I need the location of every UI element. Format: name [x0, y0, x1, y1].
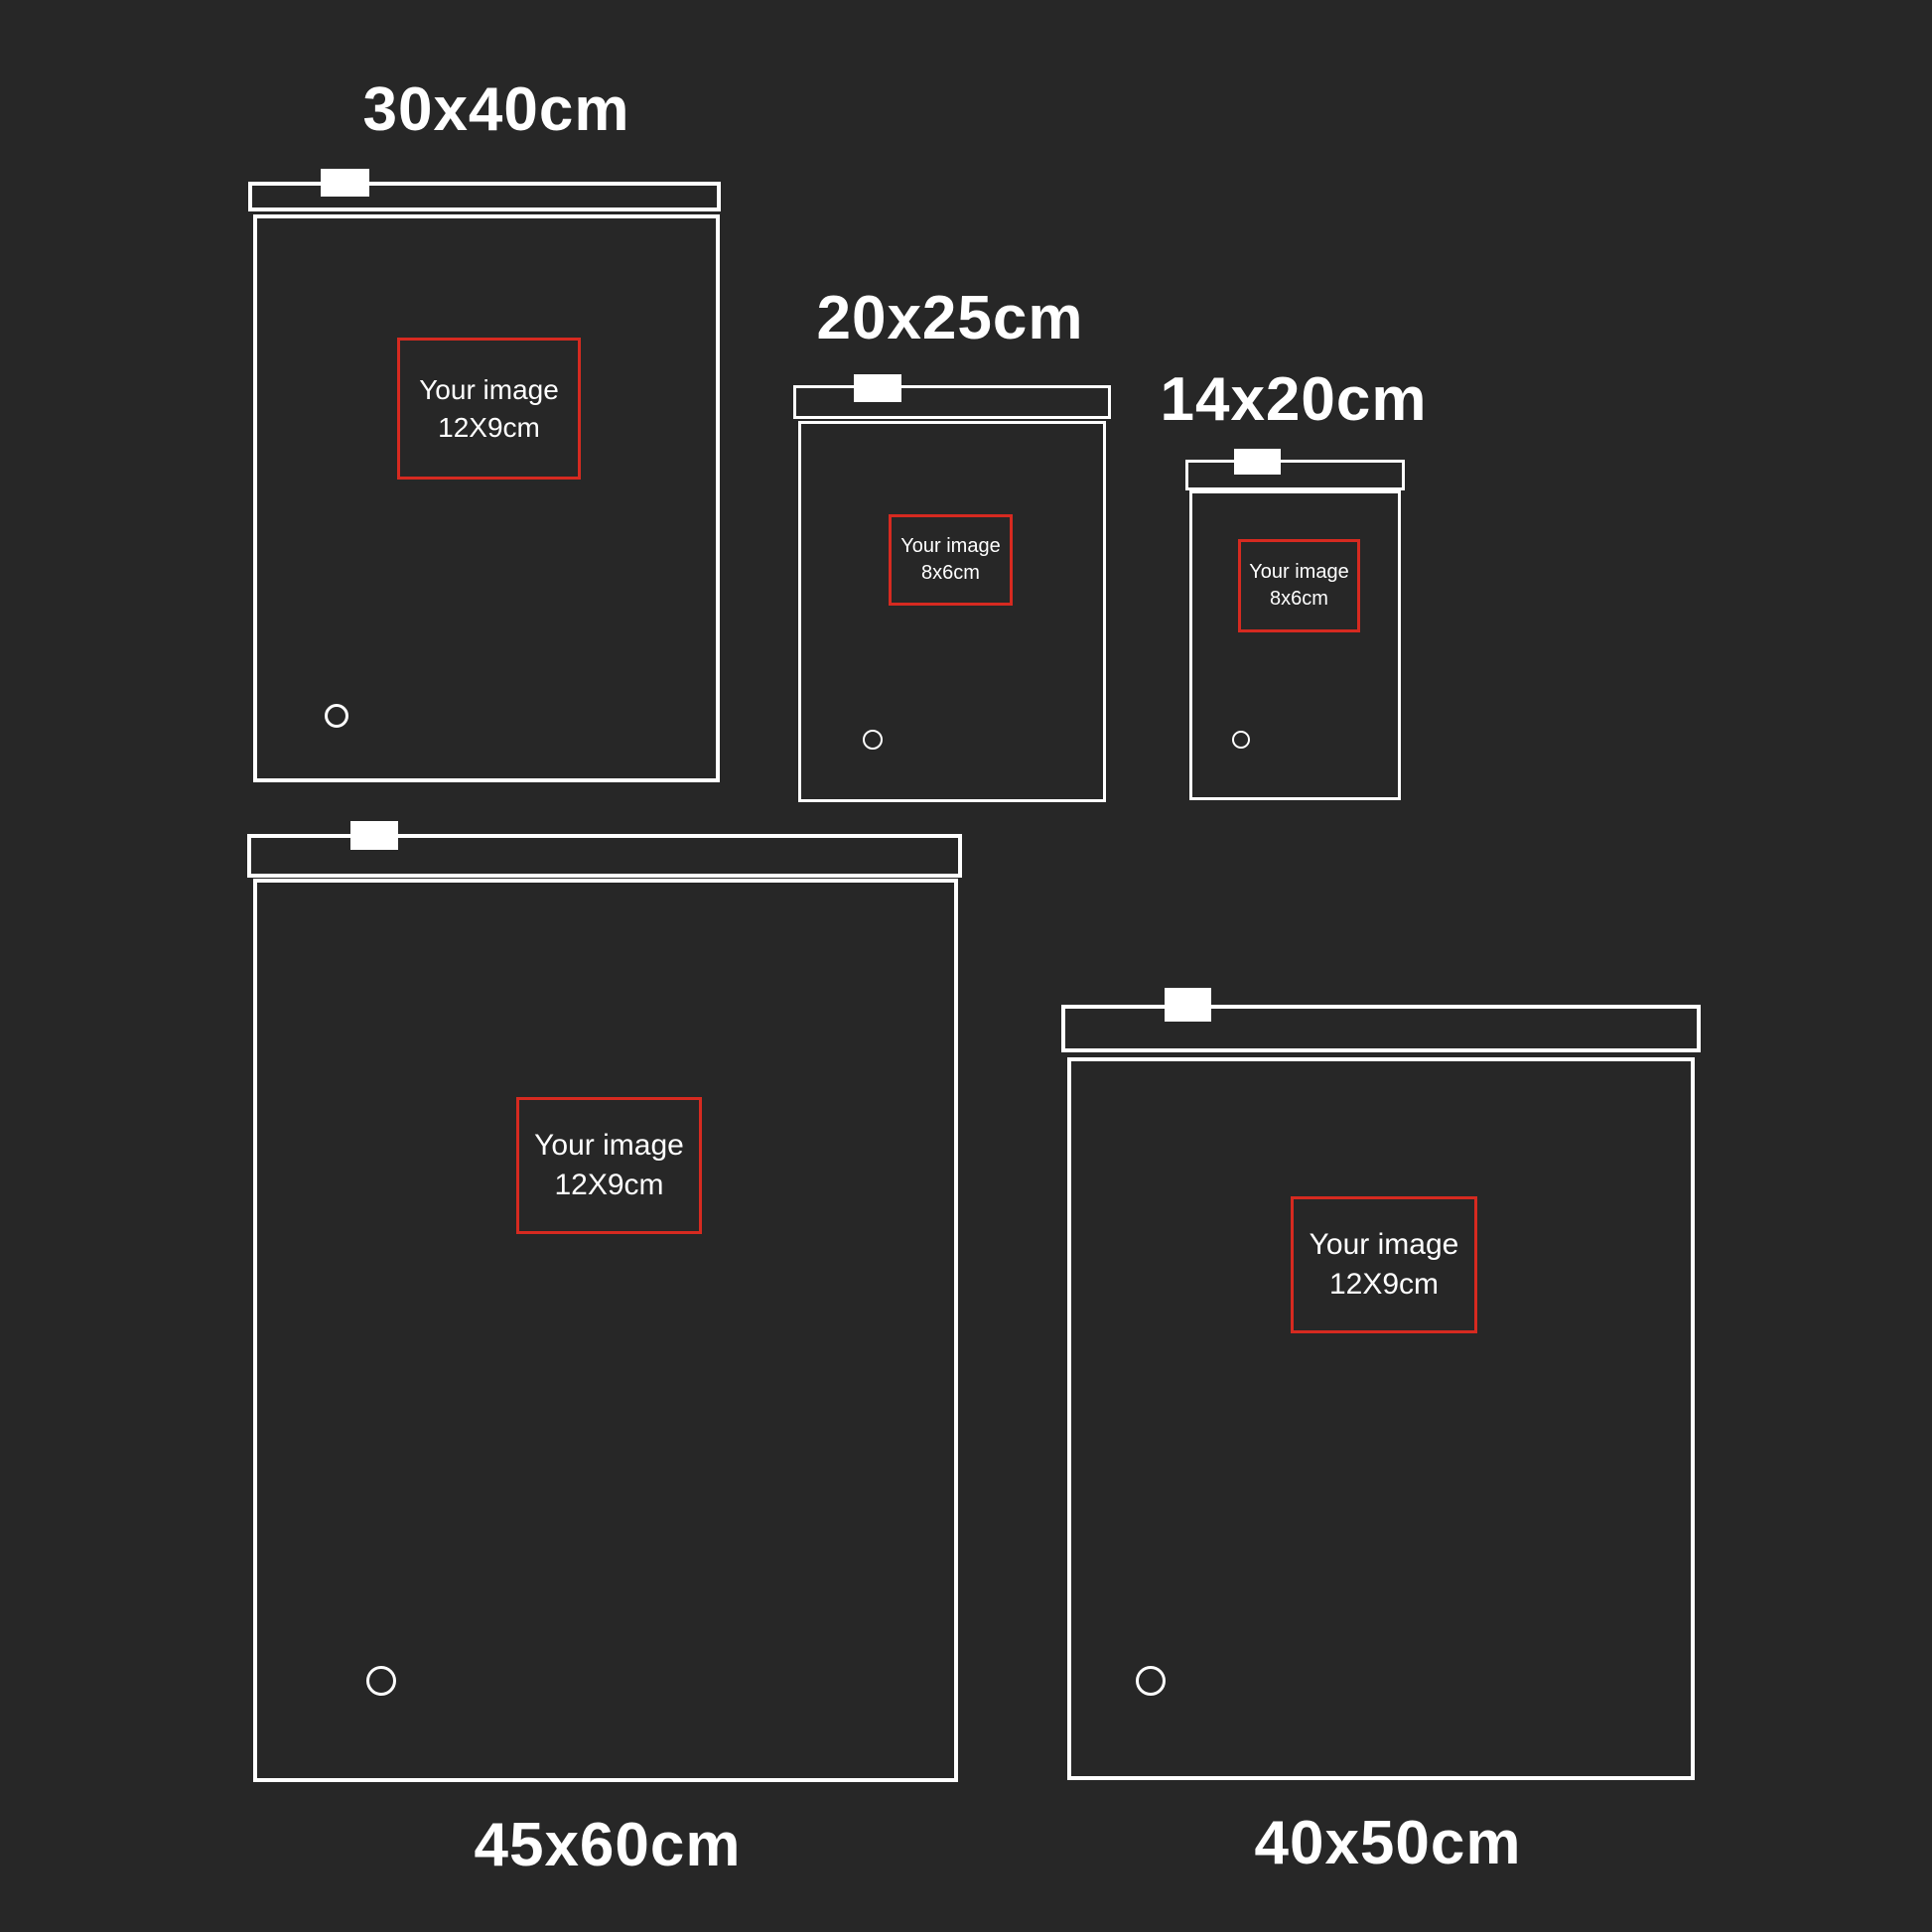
image-placeholder-text: Your image	[419, 371, 559, 409]
bag-20x25cm: Your image 8x6cm	[793, 374, 1113, 806]
image-placeholder-box: Your image 8x6cm	[1238, 539, 1360, 632]
image-placeholder-size: 12X9cm	[438, 409, 540, 447]
hang-hole	[1136, 1666, 1166, 1696]
hang-hole	[863, 730, 883, 750]
image-placeholder-box: Your image 12X9cm	[516, 1097, 702, 1234]
zipper-band	[248, 182, 721, 211]
image-placeholder-text: Your image	[1310, 1225, 1459, 1266]
zipper-band	[793, 385, 1111, 419]
image-placeholder-box: Your image 8x6cm	[889, 514, 1013, 606]
image-placeholder-size: 12X9cm	[554, 1166, 663, 1206]
hang-hole	[325, 704, 348, 728]
size-label-30x40cm: 30x40cm	[298, 79, 695, 141]
size-label-14x20cm: 14x20cm	[1095, 369, 1492, 431]
bag-size-chart: 30x40cm 20x25cm 14x20cm 45x60cm 40x50cm …	[0, 0, 1932, 1932]
size-label-40x50cm: 40x50cm	[1189, 1813, 1587, 1874]
image-placeholder-text: Your image	[900, 533, 1000, 560]
hang-hole	[366, 1666, 396, 1696]
bag-40x50cm: Your image 12X9cm	[1061, 988, 1703, 1782]
image-placeholder-size: 12X9cm	[1329, 1265, 1439, 1306]
image-placeholder-size: 8x6cm	[921, 560, 980, 587]
image-placeholder-text: Your image	[1249, 559, 1348, 586]
size-label-20x25cm: 20x25cm	[752, 288, 1149, 349]
size-label-45x60cm: 45x60cm	[409, 1815, 806, 1876]
bag-30x40cm: Your image 12X9cm	[248, 169, 725, 789]
bag-14x20cm: Your image 8x6cm	[1185, 449, 1407, 804]
bag-body	[253, 879, 958, 1782]
bag-45x60cm: Your image 12X9cm	[247, 821, 964, 1784]
hang-hole	[1232, 731, 1250, 749]
bag-body	[1189, 490, 1401, 800]
image-placeholder-text: Your image	[534, 1126, 684, 1167]
image-placeholder-box: Your image 12X9cm	[1291, 1196, 1477, 1333]
zipper-band	[1061, 1005, 1701, 1052]
bag-body	[798, 421, 1106, 802]
zipper-band	[247, 834, 962, 878]
image-placeholder-box: Your image 12X9cm	[397, 338, 581, 480]
bag-body	[253, 214, 720, 782]
zipper-band	[1185, 460, 1405, 490]
image-placeholder-size: 8x6cm	[1270, 586, 1328, 613]
